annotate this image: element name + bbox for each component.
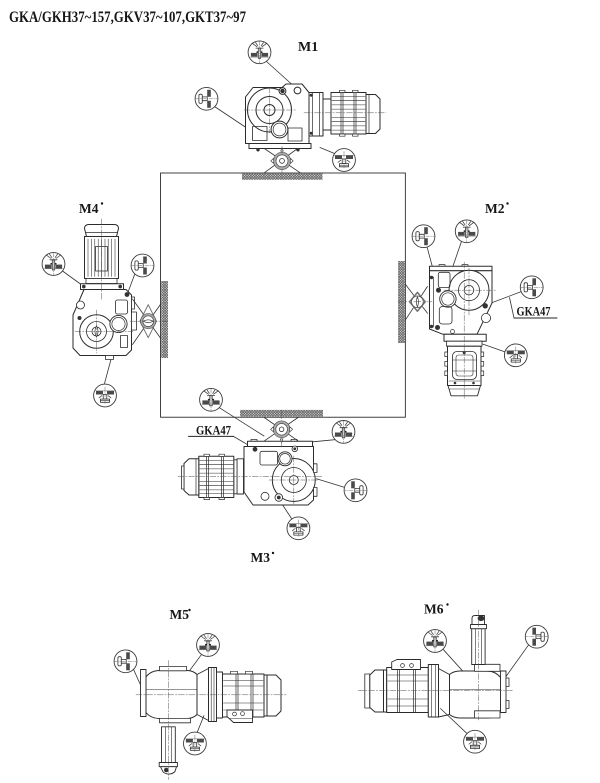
svg-text:M1: M1 (298, 40, 318, 55)
svg-text:GKA47: GKA47 (517, 305, 551, 319)
svg-text:M5: M5 (170, 607, 190, 622)
svg-text:M4: M4 (79, 201, 99, 216)
svg-text:M2: M2 (485, 201, 505, 216)
svg-text:GKA/GKH37~157,GKV37~107,GKT37~: GKA/GKH37~157,GKV37~107,GKT37~97 (9, 9, 246, 26)
svg-text:M3: M3 (251, 550, 271, 565)
svg-text:M6: M6 (424, 602, 444, 617)
svg-text:GKA47: GKA47 (196, 424, 231, 438)
